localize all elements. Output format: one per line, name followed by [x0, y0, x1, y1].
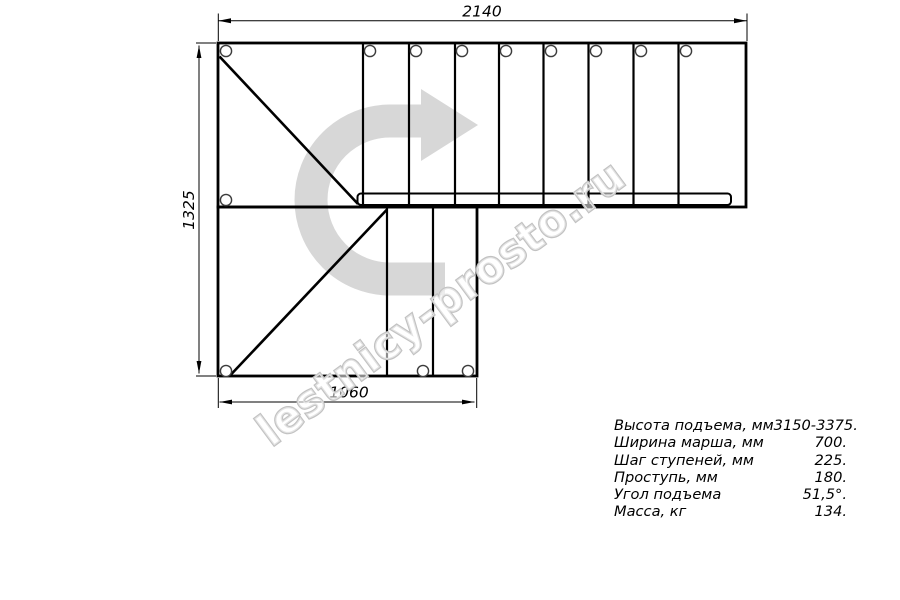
spec-value: 3150-3375.	[774, 417, 858, 434]
specs-table: Высота подъема, мм 3150-3375. Ширина мар…	[614, 417, 847, 521]
dimension-left: 1325	[180, 43, 216, 376]
dim-arrow	[734, 18, 747, 23]
spec-label: Масса, кг	[614, 503, 686, 520]
spec-row-flight-width: Ширина марша, мм 700.	[614, 434, 847, 451]
staircase-plan-page: 2140 1325 1060 lestnicy-prosto.ru Высота…	[0, 0, 900, 600]
spec-value: 51,5°.	[803, 486, 847, 503]
hole-marker	[456, 45, 467, 56]
spec-label: Проступь, мм	[614, 469, 718, 486]
dim-arrow	[197, 46, 202, 59]
turn-direction-arrow-icon	[311, 89, 478, 279]
spec-row-lift-height: Высота подъема, мм 3150-3375.	[614, 417, 847, 434]
hole-marker	[220, 45, 231, 56]
dim-left-value: 1325	[180, 190, 198, 229]
hole-marker	[680, 45, 691, 56]
hole-marker	[635, 45, 646, 56]
spec-label: Угол подъема	[614, 486, 721, 503]
spec-value: 225.	[815, 452, 848, 469]
spec-label: Ширина марша, мм	[614, 434, 764, 451]
spec-label: Высота подъема, мм	[614, 417, 774, 434]
spec-row-climb-angle: Угол подъема 51,5°.	[614, 486, 847, 503]
spec-value: 180.	[815, 469, 848, 486]
dim-arrow	[462, 400, 475, 405]
spec-label: Шаг ступеней, мм	[614, 452, 754, 469]
turn-arrow-head	[421, 89, 478, 161]
hole-marker	[545, 45, 556, 56]
spec-row-tread: Проступь, мм 180.	[614, 469, 847, 486]
spec-row-step-rise: Шаг ступеней, мм 225.	[614, 452, 847, 469]
dim-top-value: 2140	[462, 3, 502, 21]
hole-marker	[220, 194, 231, 205]
hole-marker	[364, 45, 375, 56]
dimension-top: 2140	[218, 3, 747, 42]
dim-arrow	[218, 18, 231, 23]
dim-arrow	[197, 361, 202, 374]
dim-arrow	[220, 400, 233, 405]
spec-value: 134.	[815, 503, 848, 520]
hole-marker	[417, 365, 428, 376]
hole-marker	[410, 45, 421, 56]
spec-row-mass: Масса, кг 134.	[614, 503, 847, 520]
hole-marker	[220, 365, 231, 376]
hole-marker	[500, 45, 511, 56]
hole-marker	[462, 365, 473, 376]
spec-value: 700.	[815, 434, 848, 451]
hole-marker	[590, 45, 601, 56]
